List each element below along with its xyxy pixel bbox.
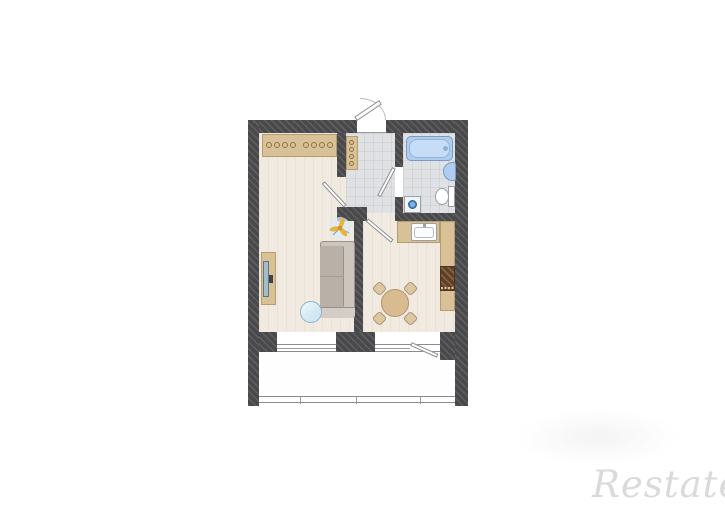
wall-bath-kitchen: [395, 213, 455, 221]
washing-machine-door-glass: [410, 202, 415, 207]
hanger-icon: [303, 142, 309, 148]
balcony-glazing: [259, 396, 455, 403]
balcony-floor: [259, 352, 455, 399]
bottom-wall-right-stub: [440, 332, 455, 360]
glazing-mullion: [300, 397, 301, 404]
toilet-bowl: [435, 188, 449, 205]
hanger-icon: [274, 142, 280, 148]
kitchen-sink-basin: [414, 227, 434, 238]
page: { "canvas": {"width": 725, "height": 512…: [0, 0, 725, 512]
top-wall-left: [248, 120, 357, 133]
bottom-wall-left-stub: [259, 332, 277, 352]
hanger-icon: [290, 142, 296, 148]
sofa-armrest: [320, 307, 355, 318]
glazing-mullion: [356, 397, 357, 404]
stove-knobs: [441, 287, 454, 289]
sofa-seam: [320, 276, 344, 277]
coffee-table: [300, 301, 322, 323]
hanger-icon: [282, 142, 288, 148]
hanger-icon: [319, 142, 325, 148]
brand-watermark: Restate: [592, 466, 725, 503]
ceiling-light-icon: [328, 216, 352, 240]
dining-table: [381, 289, 409, 317]
left-wall: [248, 120, 259, 406]
wall-living-kitchen: [354, 221, 363, 332]
hanger-icon: [349, 154, 354, 159]
right-wall: [455, 120, 468, 406]
living-room-window: [277, 344, 336, 352]
bathroom-sink: [443, 162, 456, 181]
hanger-icon: [349, 161, 354, 166]
toilet-tank: [448, 186, 455, 207]
kitchen-faucet: [423, 223, 426, 227]
wall-living-hall: [337, 133, 346, 177]
hanger-icon: [311, 142, 317, 148]
faint-watermark: [515, 408, 680, 466]
hanger-icon: [266, 142, 272, 148]
glazing-mullion: [420, 397, 421, 404]
bottom-wall-middle: [336, 332, 375, 352]
hanger-icon: [327, 142, 333, 148]
hanger-icon: [349, 147, 354, 152]
tv-mount: [269, 275, 273, 283]
hanger-icon: [349, 140, 354, 145]
entry-door-gap: [357, 120, 386, 133]
bathtub-drain: [443, 146, 448, 151]
kitchen-window: [375, 344, 410, 352]
wall-hall-bath-upper: [395, 133, 403, 167]
